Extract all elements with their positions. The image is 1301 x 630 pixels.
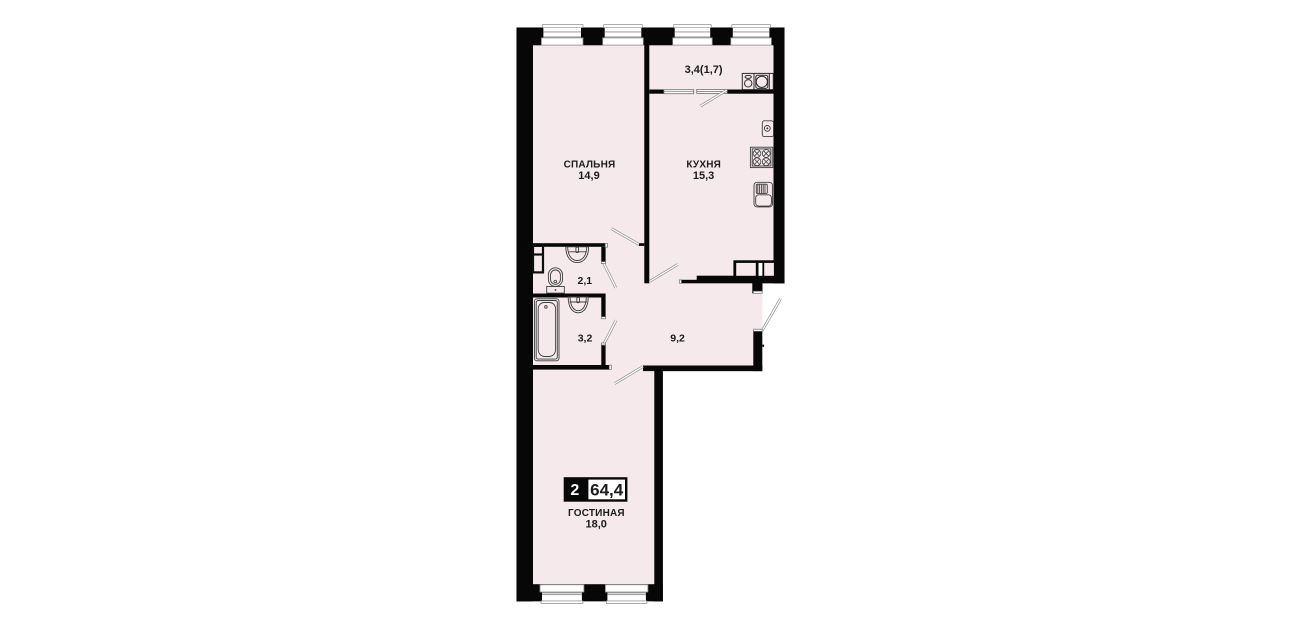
- svg-text:2,1: 2,1: [577, 275, 592, 287]
- svg-text:2: 2: [570, 482, 579, 499]
- svg-text:9,2: 9,2: [670, 332, 685, 344]
- svg-text:18,0: 18,0: [585, 519, 606, 531]
- svg-text:15,3: 15,3: [693, 170, 714, 182]
- svg-text:3,2: 3,2: [578, 333, 593, 345]
- svg-text:3,4(1,7): 3,4(1,7): [685, 64, 723, 76]
- svg-text:14,9: 14,9: [578, 170, 599, 182]
- svg-text:64,4: 64,4: [590, 481, 624, 500]
